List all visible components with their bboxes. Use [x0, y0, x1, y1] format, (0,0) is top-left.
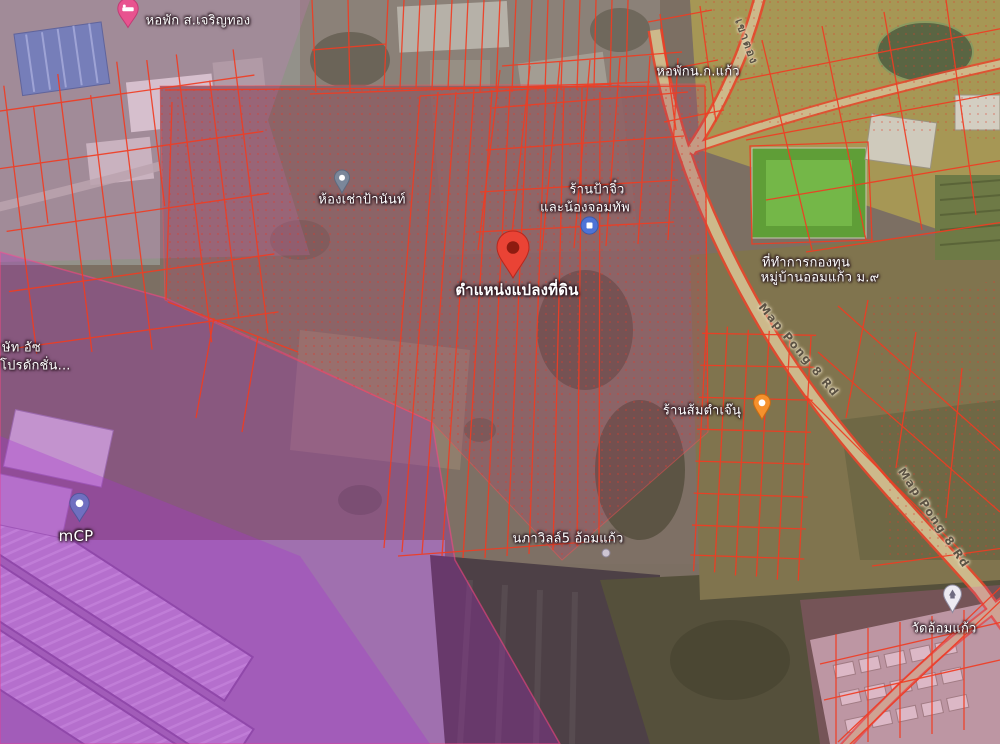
napha-ville-dot-icon[interactable] — [601, 548, 611, 558]
label-dormitory-charoenthong[interactable]: หอพัก ส.เจริญทอง — [146, 10, 251, 31]
label-mcp[interactable]: mCP — [59, 527, 94, 545]
label-village-fund-line2[interactable]: หมู่บ้านออมแก้ว ม.๙ — [761, 267, 880, 288]
label-napha-ville[interactable]: นภาวิลล์5 อ้อมแก้ว — [513, 528, 624, 549]
rental-pin-icon[interactable] — [333, 169, 351, 194]
land-plot-pin-icon[interactable] — [494, 229, 532, 281]
shop-badge-icon[interactable] — [580, 216, 599, 235]
label-rental-rooms[interactable]: ห้องเช่าป้านันท์ — [318, 189, 405, 210]
mcp-pin-icon[interactable] — [68, 492, 91, 523]
label-land-plot-position: ตำแหน่งแปลงที่ดิน — [455, 278, 578, 302]
label-shop-pa-line2[interactable]: และน้องจอมทัพ — [540, 197, 630, 218]
label-temple[interactable]: วัดอ้อมแก้ว — [911, 618, 976, 639]
satellite-map-layer — [0, 0, 1000, 744]
temple-pin-icon[interactable] — [942, 584, 963, 614]
label-somtam-shop[interactable]: ร้านส้มตำเจ๊นุ — [663, 400, 741, 421]
label-company-line2[interactable]: โปรดักชั่น... — [0, 355, 71, 376]
map-canvas[interactable]: หอพัก ส.เจริญทอง หอพักน.ก.แก้ว ห้องเช่าป… — [0, 0, 1000, 744]
lodging-pin-icon[interactable] — [116, 0, 140, 29]
restaurant-pin-icon[interactable] — [752, 393, 772, 421]
label-dormitory-nk-kaew[interactable]: หอพักน.ก.แก้ว — [656, 61, 740, 82]
